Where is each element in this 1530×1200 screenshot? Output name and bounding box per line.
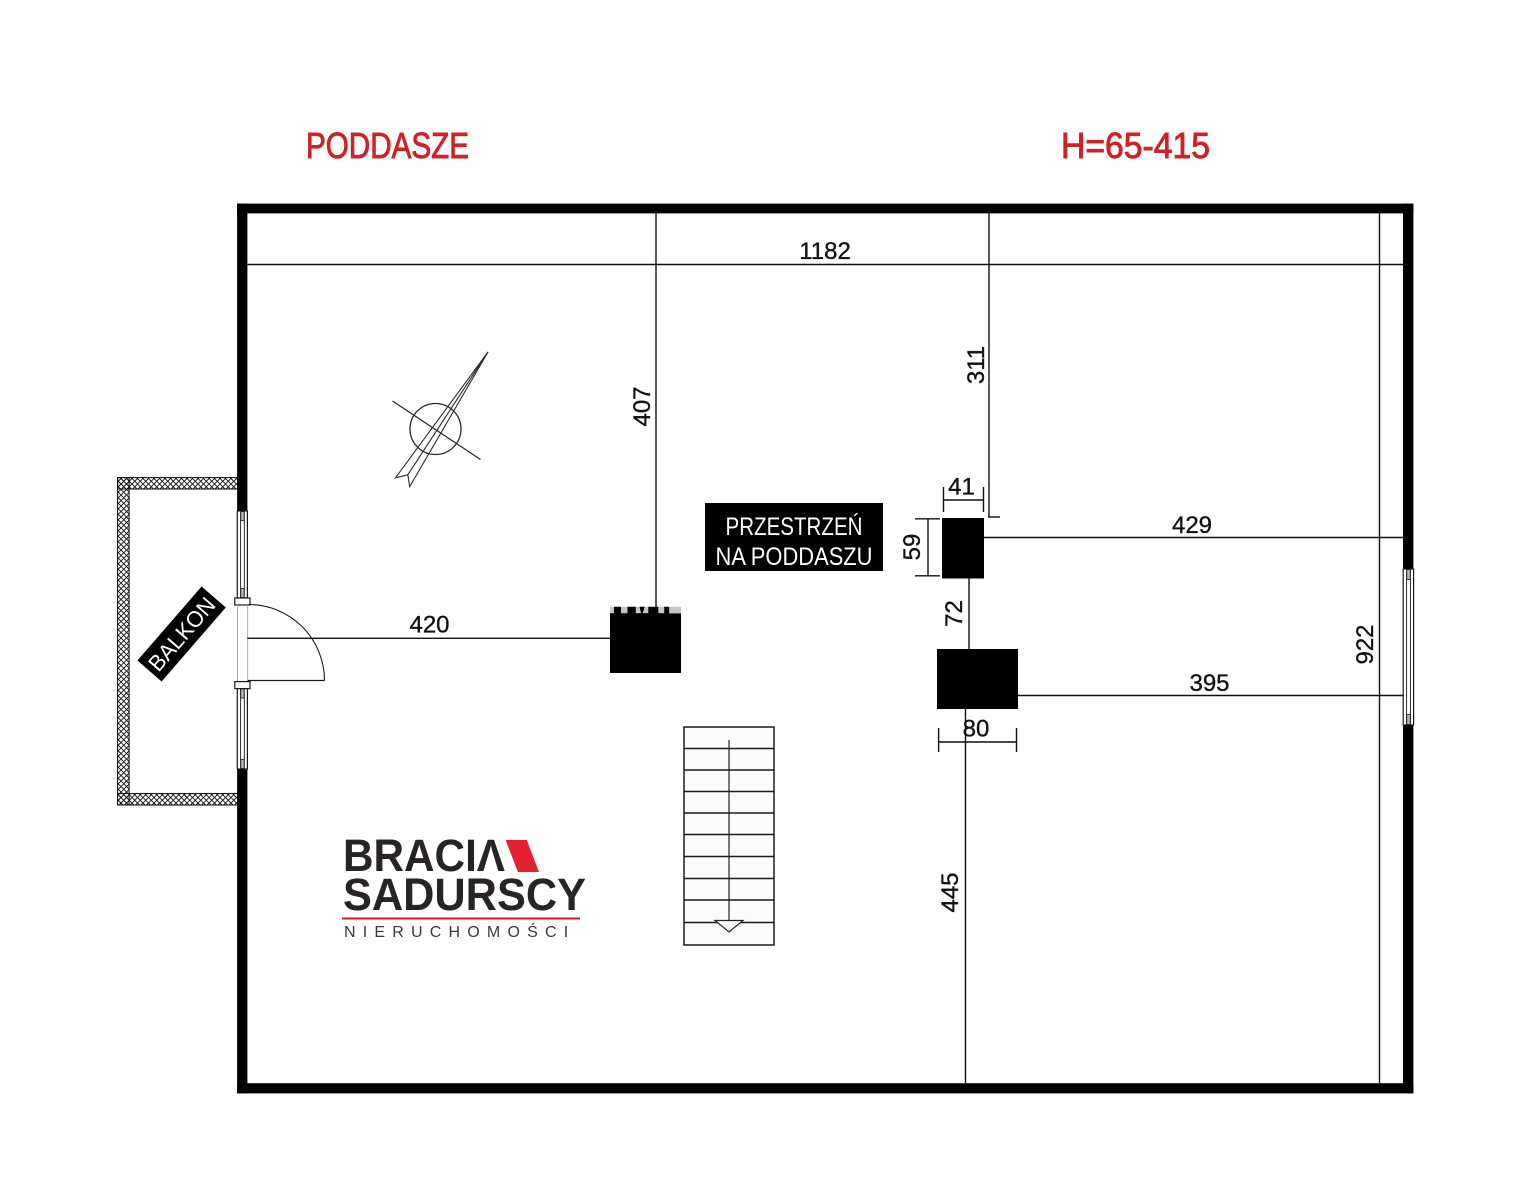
svg-text:922: 922 xyxy=(1352,624,1379,664)
svg-text:311: 311 xyxy=(963,346,990,384)
svg-text:PRZESTRZEŃ: PRZESTRZEŃ xyxy=(726,512,863,541)
svg-text:41: 41 xyxy=(948,474,975,501)
svg-text:445: 445 xyxy=(937,872,964,912)
svg-text:1182: 1182 xyxy=(799,238,851,265)
svg-text:SADURSCY: SADURSCY xyxy=(343,869,586,920)
svg-text:395: 395 xyxy=(1189,670,1229,697)
svg-text:H=65-415: H=65-415 xyxy=(1061,125,1210,166)
svg-text:420: 420 xyxy=(409,612,449,639)
svg-text:NA PODDASZU: NA PODDASZU xyxy=(716,543,873,571)
svg-text:59: 59 xyxy=(899,534,926,561)
svg-text:NIERUCHOMOŚCI: NIERUCHOMOŚCI xyxy=(344,922,575,941)
svg-text:407: 407 xyxy=(629,386,656,426)
svg-text:429: 429 xyxy=(1172,512,1212,539)
svg-text:80: 80 xyxy=(963,716,990,743)
svg-text:PODDASZE: PODDASZE xyxy=(306,125,469,166)
svg-text:72: 72 xyxy=(941,600,968,627)
